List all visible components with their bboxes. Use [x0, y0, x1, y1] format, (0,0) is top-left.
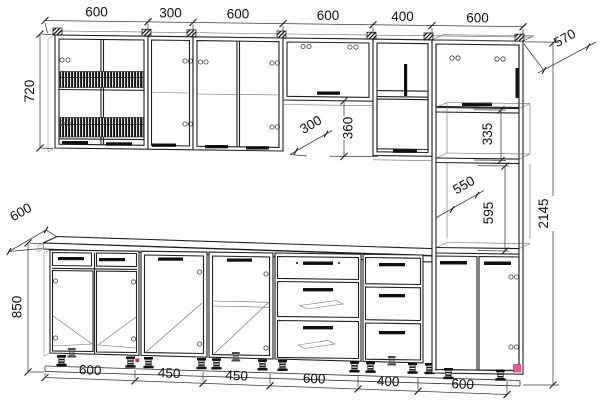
dim-bottom-4: 600: [303, 371, 326, 387]
dim-bottom-3: 450: [225, 368, 248, 384]
dim-base-height: 850: [10, 240, 45, 376]
dim-wall-depth: 300: [290, 112, 332, 156]
base-cabinet-450-shelf: [209, 252, 273, 359]
dim-570-label: 570: [551, 26, 578, 50]
base-cabinet-600-doors: [50, 250, 139, 355]
dim-300-label: 300: [297, 112, 324, 136]
dim-360-label: 360: [341, 117, 356, 140]
dim-total-height: 2145: [523, 40, 559, 389]
dim-2145-label: 2145: [536, 198, 551, 228]
base-cabinet-600-drawers: [275, 253, 361, 361]
dim-600-depth-label: 600: [7, 200, 34, 224]
wall-cabinet-600-flap: [283, 38, 373, 106]
wall-cabinet-400-open: [373, 39, 432, 161]
dim-595-label: 595: [481, 202, 496, 225]
dim-850-label: 850: [10, 296, 25, 319]
wall-cabinet-600-double: [193, 37, 283, 151]
base-cabinet-400-drawers: [363, 254, 423, 363]
drawing-canvas: 600 300 600 600 400 600 600 450 450 600 …: [0, 0, 600, 408]
dim-flap-height: 360: [330, 98, 378, 161]
dim-bottom-6: 600: [451, 376, 474, 392]
dim-top-4: 600: [317, 8, 340, 23]
dim-top-6: 600: [466, 10, 489, 25]
dim-bottom-5: 400: [377, 373, 400, 389]
kitchen-elevation-drawing: 600 300 600 600 400 600 600 450 450 600 …: [0, 0, 600, 408]
red-marker: [136, 359, 140, 363]
dim-top-1: 600: [85, 4, 108, 19]
pink-marker: [514, 365, 521, 373]
dim-bottom-1: 600: [79, 362, 102, 378]
dim-tall-depth: 570: [524, 26, 596, 74]
dim-top-2: 300: [159, 6, 182, 21]
base-cabinet-450-door: [141, 251, 207, 357]
wall-cabinet-300: [148, 36, 193, 150]
wall-cabinet-600-dishrack: [48, 35, 148, 152]
dim-720-label: 720: [22, 80, 37, 103]
dim-335-label: 335: [480, 123, 495, 146]
dim-bottom-2: 450: [158, 365, 181, 381]
dim-top-3: 600: [227, 7, 250, 22]
base-left-side-panel: [44, 250, 50, 356]
dim-top-5: 400: [391, 9, 414, 24]
